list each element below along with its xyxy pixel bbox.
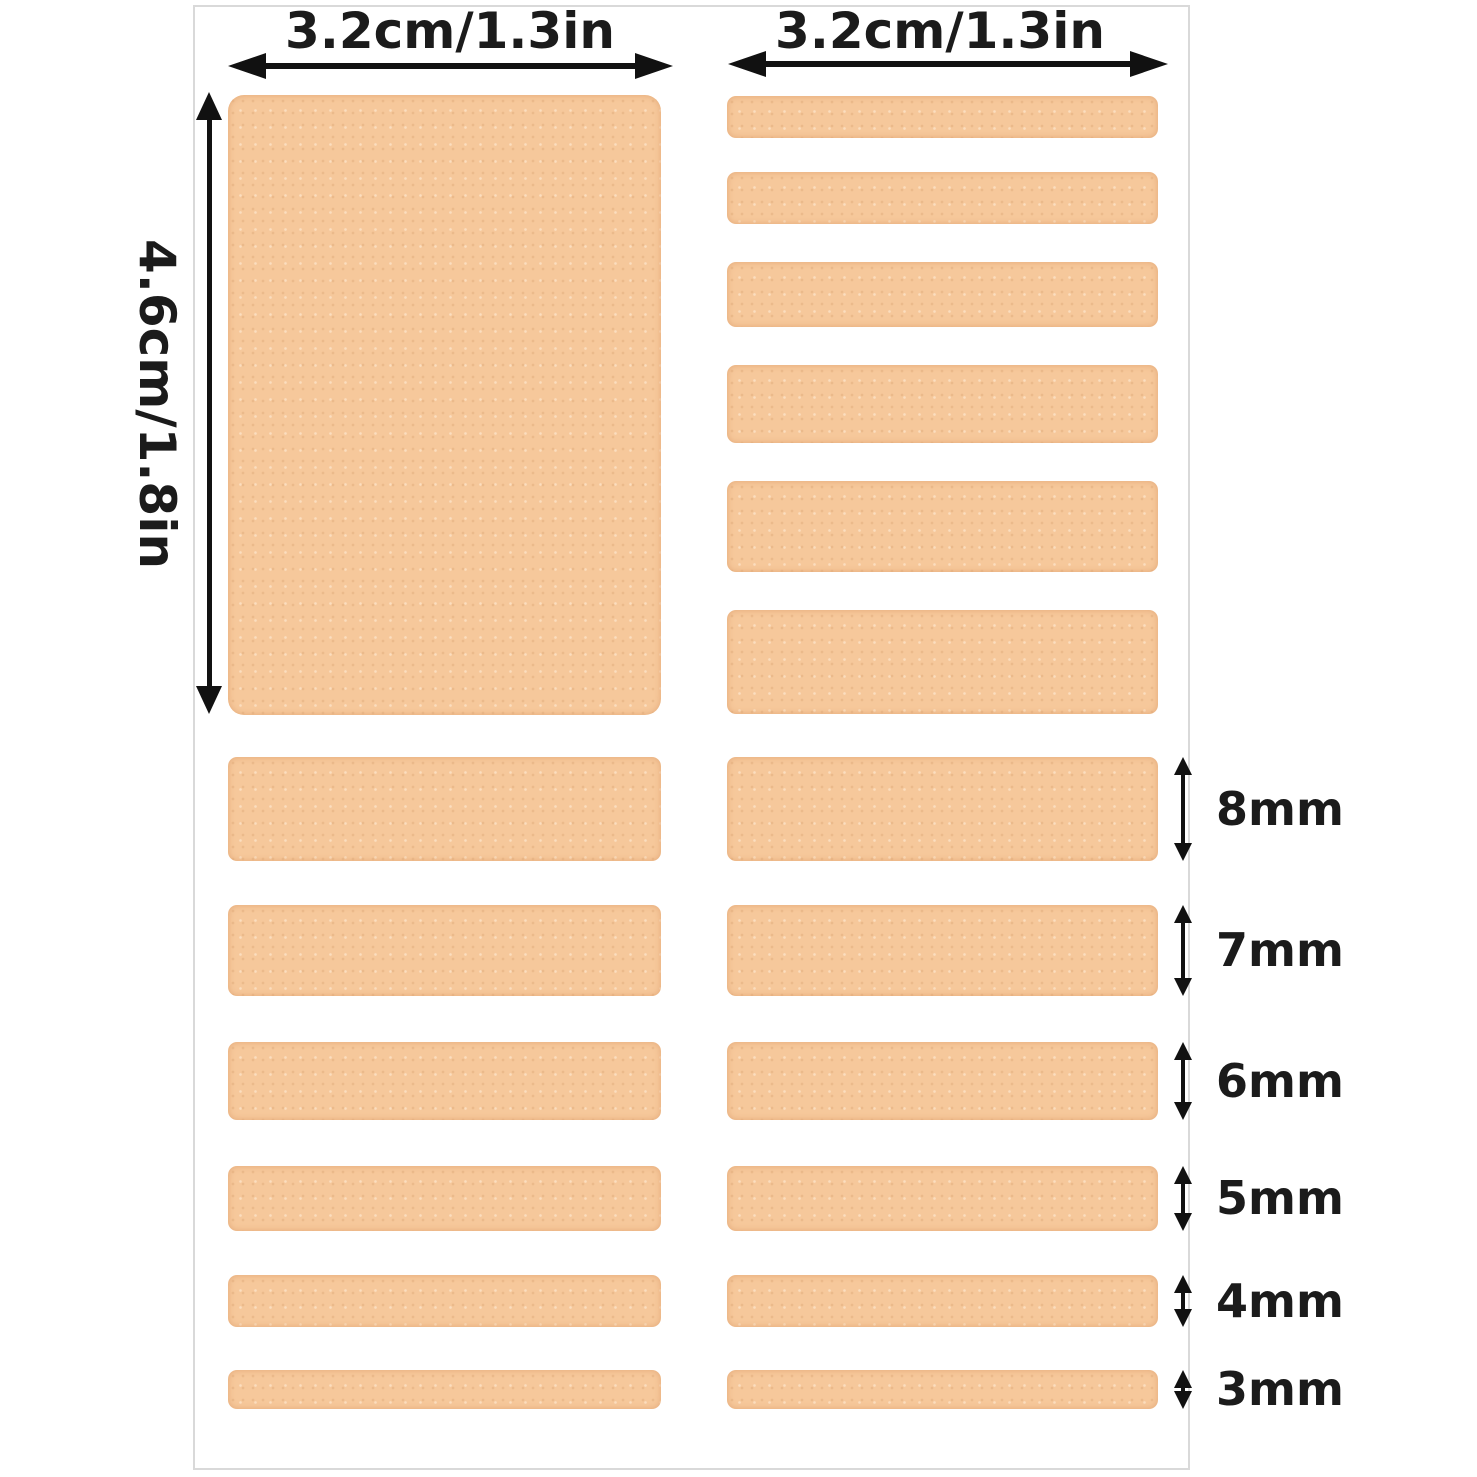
thickness-arrow-8mm — [1173, 757, 1193, 861]
arrow-shaft — [754, 61, 1142, 67]
product-dimension-diagram: 3.2cm/1.3in 3.2cm/1.3in 4.6cm/1.8in — [0, 0, 1477, 1477]
width-label-left: 3.2cm/1.3in — [195, 2, 705, 60]
foam-strip-right-5mm-top — [727, 262, 1158, 327]
foam-strip-left-8mm — [228, 757, 661, 861]
foam-strip-left-5mm — [228, 1166, 661, 1231]
height-label: 4.6cm/1.8in — [127, 94, 187, 714]
foam-strip-right-4mm-top — [727, 172, 1158, 224]
foam-strip-right-6mm-top — [727, 365, 1158, 443]
arrowhead-down-icon — [1174, 843, 1192, 861]
arrowhead-right-icon — [635, 53, 673, 79]
foam-strip-right-3mm-top — [727, 96, 1158, 138]
thickness-arrow-4mm — [1173, 1275, 1193, 1327]
foam-strip-right-8mm-top — [727, 610, 1158, 714]
arrow-shaft — [254, 63, 647, 69]
thickness-label-6mm: 6mm — [1216, 1053, 1376, 1109]
arrowhead-down-icon — [1174, 1102, 1192, 1120]
foam-pad-large — [228, 95, 661, 715]
foam-strip-right-6mm — [727, 1042, 1158, 1120]
foam-strip-right-7mm-top — [727, 481, 1158, 572]
foam-strip-left-6mm — [228, 1042, 661, 1120]
thickness-arrow-3mm — [1173, 1370, 1193, 1409]
arrowhead-down-icon — [196, 686, 222, 714]
foam-strip-left-7mm — [228, 905, 661, 996]
foam-strip-right-5mm — [727, 1166, 1158, 1231]
height-arrow — [196, 92, 222, 714]
thickness-arrow-5mm — [1173, 1166, 1193, 1231]
arrow-shaft — [1181, 917, 1185, 984]
thickness-label-4mm: 4mm — [1216, 1273, 1376, 1329]
foam-strip-right-4mm — [727, 1275, 1158, 1327]
width-arrow-left — [228, 53, 673, 79]
arrowhead-down-icon — [1174, 1309, 1192, 1327]
arrowhead-down-icon — [1174, 1213, 1192, 1231]
arrow-shaft — [1181, 769, 1185, 849]
thickness-label-3mm: 3mm — [1216, 1361, 1376, 1417]
arrowhead-down-icon — [1174, 1391, 1192, 1409]
thickness-label-5mm: 5mm — [1216, 1170, 1376, 1226]
foam-strip-right-3mm — [727, 1370, 1158, 1409]
arrowhead-right-icon — [1130, 51, 1168, 77]
arrow-shaft — [1181, 1054, 1185, 1108]
arrowhead-down-icon — [1174, 978, 1192, 996]
thickness-label-7mm: 7mm — [1216, 922, 1376, 978]
thickness-arrow-7mm — [1173, 905, 1193, 996]
thickness-label-8mm: 8mm — [1216, 781, 1376, 837]
foam-strip-left-3mm — [228, 1370, 661, 1409]
foam-strip-right-7mm — [727, 905, 1158, 996]
width-arrow-right — [728, 51, 1168, 77]
foam-strip-right-8mm — [727, 757, 1158, 861]
thickness-arrow-6mm — [1173, 1042, 1193, 1120]
foam-strip-left-4mm — [228, 1275, 661, 1327]
arrow-shaft — [207, 114, 212, 692]
